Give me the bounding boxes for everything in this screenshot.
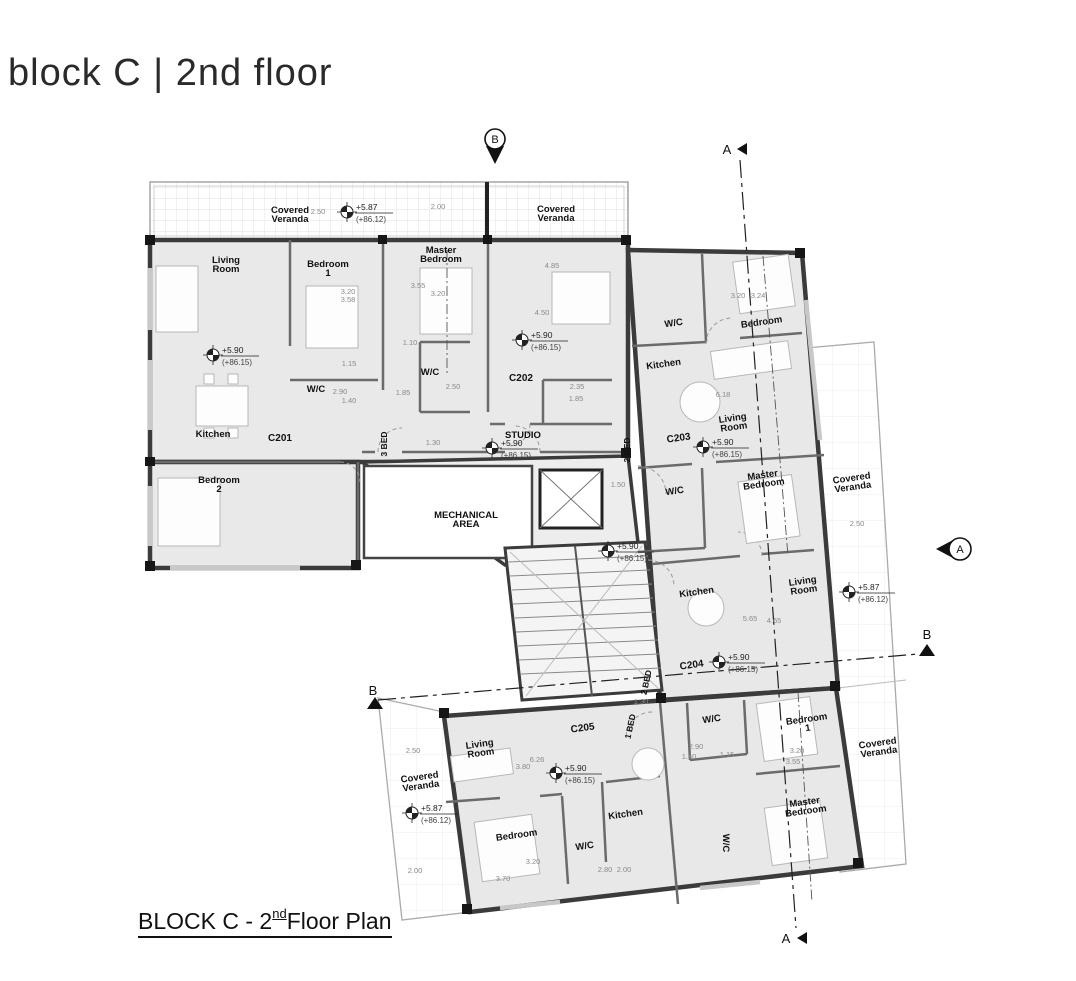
svg-text:3.58: 3.58 (341, 295, 356, 304)
svg-text:1.50: 1.50 (611, 480, 626, 489)
svg-text:3.70: 3.70 (496, 874, 511, 883)
elevation-level: +5.90 (531, 330, 553, 340)
drawing-caption: BLOCK C - 2nd Floor Plan (138, 908, 392, 938)
svg-text:6.26: 6.26 (530, 755, 545, 764)
elevation-level: +5.90 (501, 438, 523, 448)
svg-text:A: A (723, 142, 732, 157)
svg-text:3.80: 3.80 (516, 762, 531, 771)
svg-text:2.35: 2.35 (570, 382, 585, 391)
dimension-label: 1.30 (634, 697, 649, 706)
svg-text:3.20: 3.20 (790, 746, 805, 755)
section-marker-a-top: A (723, 142, 747, 157)
elevation-datum: (+86.15) (617, 554, 647, 563)
svg-text:1.40: 1.40 (682, 752, 697, 761)
dimension-label: 2.50 (406, 746, 421, 755)
svg-text:2.80: 2.80 (598, 865, 613, 874)
svg-text:3.20: 3.20 (526, 857, 541, 866)
bed-count-label: 3 BED (379, 431, 389, 456)
svg-text:3.55: 3.55 (411, 281, 426, 290)
elevation-level: +5.90 (222, 345, 244, 355)
svg-text:B: B (369, 683, 378, 698)
dimension-label: 1.15 (342, 359, 357, 368)
svg-text:A: A (956, 544, 964, 556)
elevation-datum: (+86.15) (501, 451, 531, 460)
caption-ordinal: nd (272, 906, 286, 921)
svg-text:Room: Room (213, 264, 240, 275)
elevation-datum: (+86.12) (356, 215, 386, 224)
svg-text:Bedroom: Bedroom (420, 254, 462, 265)
veranda-label: CoveredVeranda (537, 204, 575, 224)
svg-text:2.00: 2.00 (617, 865, 632, 874)
svg-text:W/C: W/C (307, 384, 326, 395)
elevation-datum: (+86.12) (858, 595, 888, 604)
elevation-level: +5.90 (712, 437, 734, 447)
dimension-label: 2.50 (311, 207, 326, 216)
room-label: LivingRoom (465, 737, 496, 761)
dimension-label: 4.65 (767, 616, 782, 625)
dimension-label: 1.15 (720, 750, 735, 759)
svg-text:1.10: 1.10 (403, 338, 418, 347)
elevation-datum: (+86.15) (728, 665, 758, 674)
unit-label: C202 (509, 373, 533, 384)
svg-text:Veranda: Veranda (272, 214, 310, 225)
dimension-label: 3.20 (526, 857, 541, 866)
elevation-level: +5.87 (858, 582, 880, 592)
room-label: W/C (720, 834, 731, 853)
veranda-label: CoveredVeranda (271, 205, 309, 225)
drawing-sheet: block C | 2nd floor (0, 0, 1076, 981)
svg-text:2.50: 2.50 (446, 382, 461, 391)
svg-text:1.30: 1.30 (426, 438, 441, 447)
dimension-label: 1.40 (342, 396, 357, 405)
dimension-label: 3.20 (790, 746, 805, 755)
dimension-label: 3.20 (731, 291, 746, 300)
room-label: LivingRoom (718, 411, 749, 435)
svg-text:B: B (491, 134, 498, 146)
svg-text:2.00: 2.00 (431, 202, 446, 211)
dimension-label: 2.90 (689, 742, 704, 751)
svg-text:3.20: 3.20 (731, 291, 746, 300)
elevation-datum: (+86.15) (712, 450, 742, 459)
unit-label: C201 (268, 433, 292, 444)
svg-text:5.65: 5.65 (743, 614, 758, 623)
floor-plan: B A A B B A Li (0, 0, 1076, 981)
svg-text:W/C: W/C (720, 834, 731, 853)
dimension-label: 3.24 (751, 291, 766, 300)
svg-text:3.24: 3.24 (751, 291, 766, 300)
bed-count-label: 2 BED (622, 437, 632, 462)
svg-text:C202: C202 (509, 373, 533, 384)
svg-text:Kitchen: Kitchen (196, 429, 231, 440)
dimension-label: 2.50 (850, 519, 865, 528)
elevation-level: +5.90 (565, 763, 587, 773)
elevation-datum: (+86.15) (565, 776, 595, 785)
dimension-label: 1.50 (611, 480, 626, 489)
svg-text:2 BED: 2 BED (622, 437, 632, 462)
dimension-label: 2.35 (570, 382, 585, 391)
section-marker-b-right: B (919, 627, 935, 656)
svg-text:2: 2 (216, 484, 221, 495)
svg-text:Veranda: Veranda (538, 213, 576, 224)
dimension-label: 2.00 (431, 202, 446, 211)
dimension-label: 3.55 (411, 281, 426, 290)
dimension-label: 2.90 (333, 387, 348, 396)
svg-text:2.50: 2.50 (406, 746, 421, 755)
svg-text:2.00: 2.00 (408, 866, 423, 875)
room-label: Kitchen (196, 429, 231, 440)
dimension-label: 4.85 (545, 261, 560, 270)
dimension-label: 2.00 (408, 866, 423, 875)
dimension-label: 3.58 (341, 295, 356, 304)
svg-text:6.18: 6.18 (716, 390, 731, 399)
dimension-label: 3.55 (786, 757, 801, 766)
dimension-label: 1.10 (403, 338, 418, 347)
dimension-label: 1.30 (426, 438, 441, 447)
elevation-datum: (+86.15) (222, 358, 252, 367)
svg-text:3.20: 3.20 (431, 289, 446, 298)
dimension-label: 1.85 (569, 394, 584, 403)
svg-text:4.50: 4.50 (535, 308, 550, 317)
svg-text:2.50: 2.50 (850, 519, 865, 528)
dimension-label: 3.20 (431, 289, 446, 298)
svg-text:1: 1 (325, 268, 331, 279)
svg-text:A: A (782, 931, 791, 946)
svg-text:C201: C201 (268, 433, 292, 444)
dimension-label: 5.65 (743, 614, 758, 623)
svg-text:1.85: 1.85 (396, 388, 411, 397)
dimension-label: 2.80 (598, 865, 613, 874)
svg-text:3.55: 3.55 (786, 757, 801, 766)
svg-text:1.15: 1.15 (720, 750, 735, 759)
section-marker-b-top: B (485, 129, 505, 164)
svg-text:3 BED: 3 BED (379, 431, 389, 456)
elevator-shaft (540, 470, 602, 528)
dimension-label: 3.70 (496, 874, 511, 883)
svg-text:1.40: 1.40 (342, 396, 357, 405)
elevation-datum: (+86.15) (531, 343, 561, 352)
svg-text:B: B (923, 627, 932, 642)
room-label: LivingRoom (788, 574, 819, 598)
room-label: LivingRoom (212, 255, 240, 275)
svg-text:4.85: 4.85 (545, 261, 560, 270)
elevation-level: +5.87 (356, 202, 378, 212)
dimension-label: 2.00 (617, 865, 632, 874)
svg-text:2.90: 2.90 (333, 387, 348, 396)
dimension-label: 3.80 (516, 762, 531, 771)
elevation-level: +5.90 (728, 652, 750, 662)
caption-prefix: BLOCK C - 2 (138, 908, 272, 935)
room-label: W/C (421, 367, 440, 378)
elevation-level: +5.90 (617, 541, 639, 551)
svg-text:2.50: 2.50 (311, 207, 326, 216)
room-label: W/C (307, 384, 326, 395)
svg-text:2.90: 2.90 (689, 742, 704, 751)
dimension-label: 1.40 (682, 752, 697, 761)
svg-text:1.30: 1.30 (634, 697, 649, 706)
section-marker-a-bottom: A (782, 931, 807, 946)
dimension-label: 4.50 (535, 308, 550, 317)
svg-text:AREA: AREA (453, 519, 480, 530)
elevation-datum: (+86.12) (421, 816, 451, 825)
svg-text:4.65: 4.65 (767, 616, 782, 625)
svg-text:W/C: W/C (421, 367, 440, 378)
elevation-level: +5.87 (421, 803, 443, 813)
dimension-label: 1.85 (396, 388, 411, 397)
room-label: MasterBedroom (420, 245, 462, 265)
svg-text:1.15: 1.15 (342, 359, 357, 368)
caption-suffix: Floor Plan (287, 908, 392, 935)
staircase (505, 542, 662, 700)
dimension-label: 6.26 (530, 755, 545, 764)
dimension-label: 2.50 (446, 382, 461, 391)
svg-text:1.85: 1.85 (569, 394, 584, 403)
section-marker-a-right: A (936, 538, 971, 560)
dimension-label: 6.18 (716, 390, 731, 399)
